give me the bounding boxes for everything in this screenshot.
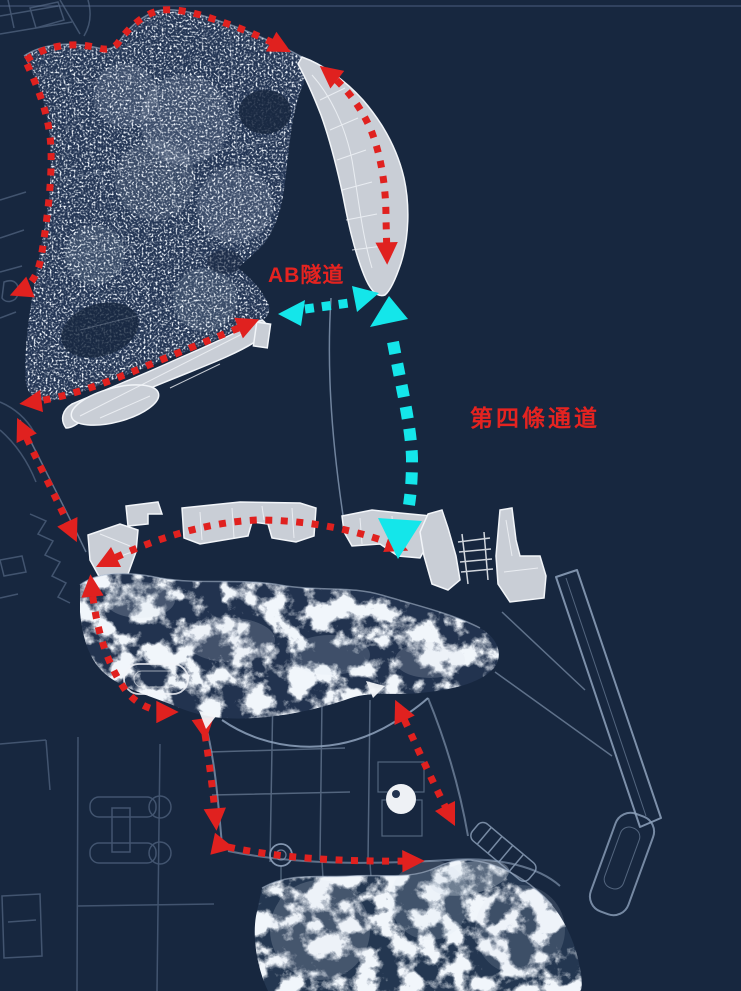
label-ab-tunnel: AB隧道: [268, 263, 344, 287]
peninsula-tip-pier: [253, 322, 270, 348]
macau-corridor-map-screenshot: AB隧道 第四條通道: [0, 0, 741, 991]
round-building-dot: [392, 790, 400, 798]
label-fourth-corridor: 第四條通道: [470, 405, 600, 431]
map-canvas: AB隧道 第四條通道: [0, 0, 741, 991]
ab-tunnel-dashes: [305, 303, 349, 309]
round-building: [386, 784, 416, 814]
